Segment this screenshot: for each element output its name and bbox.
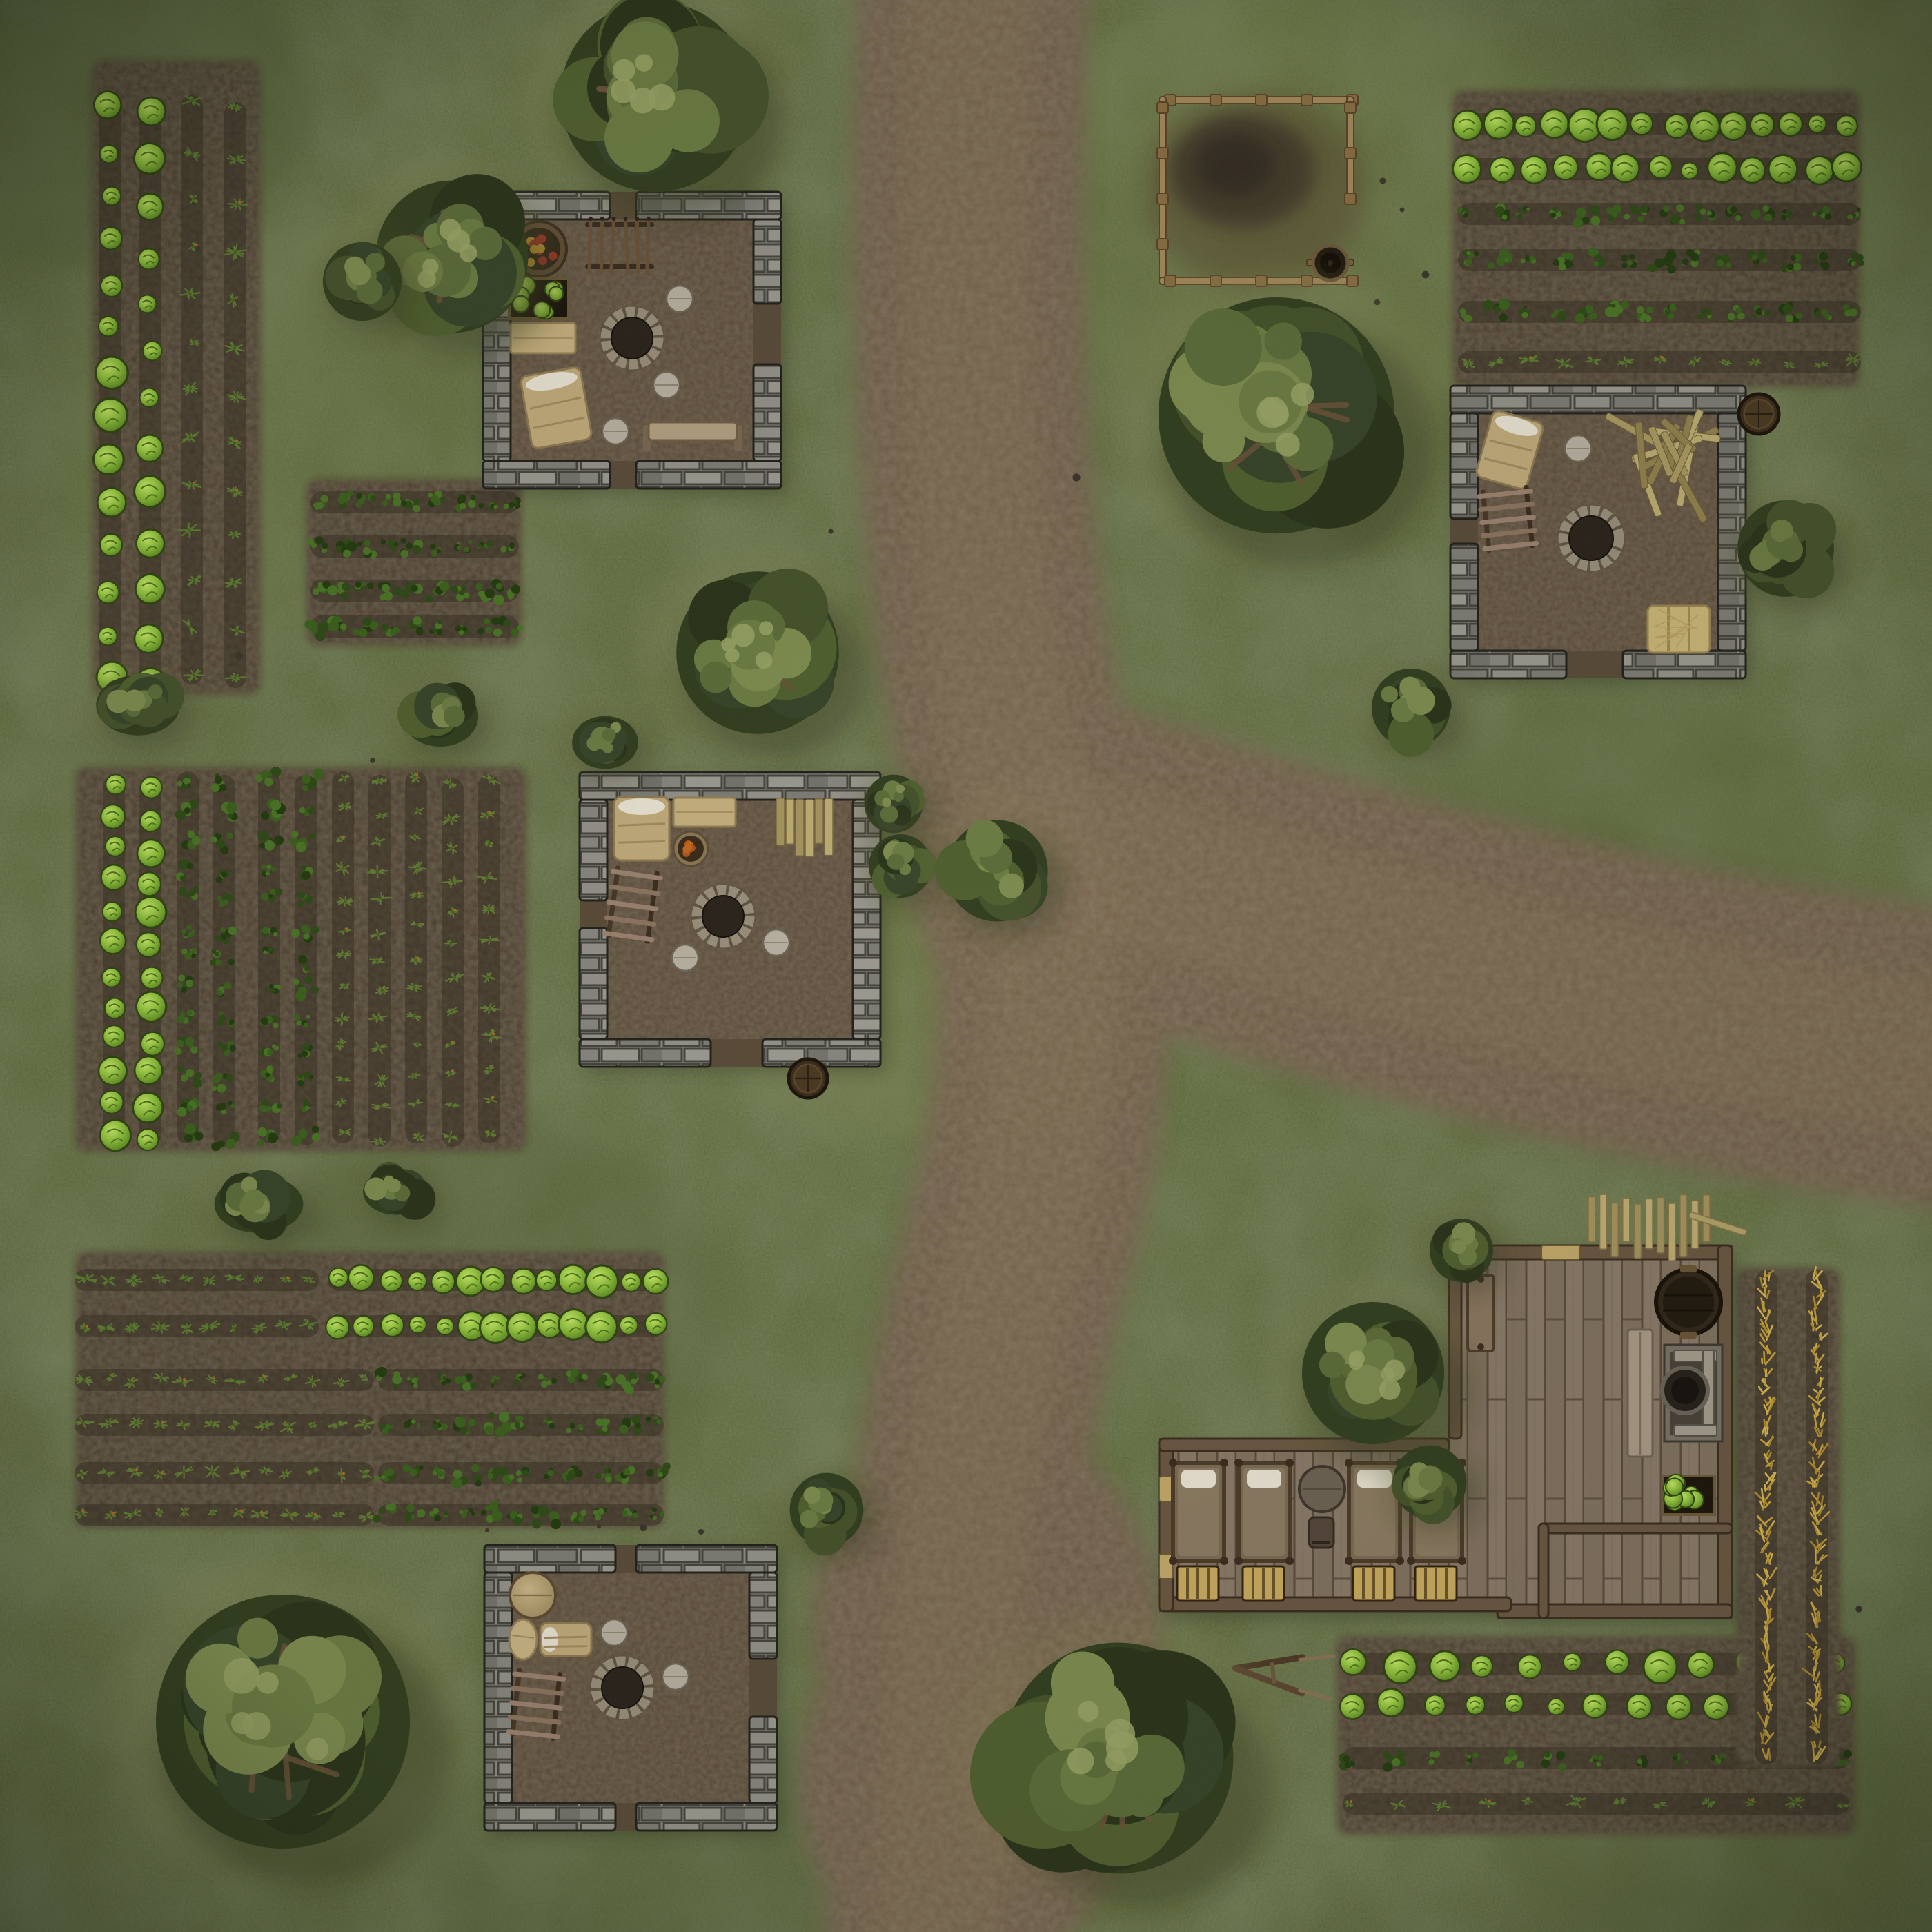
village-map: [0, 0, 1932, 1932]
vignette: [0, 0, 1932, 1932]
lighting-layer: [0, 0, 1932, 1932]
battle-map-canvas: [0, 0, 1932, 1932]
